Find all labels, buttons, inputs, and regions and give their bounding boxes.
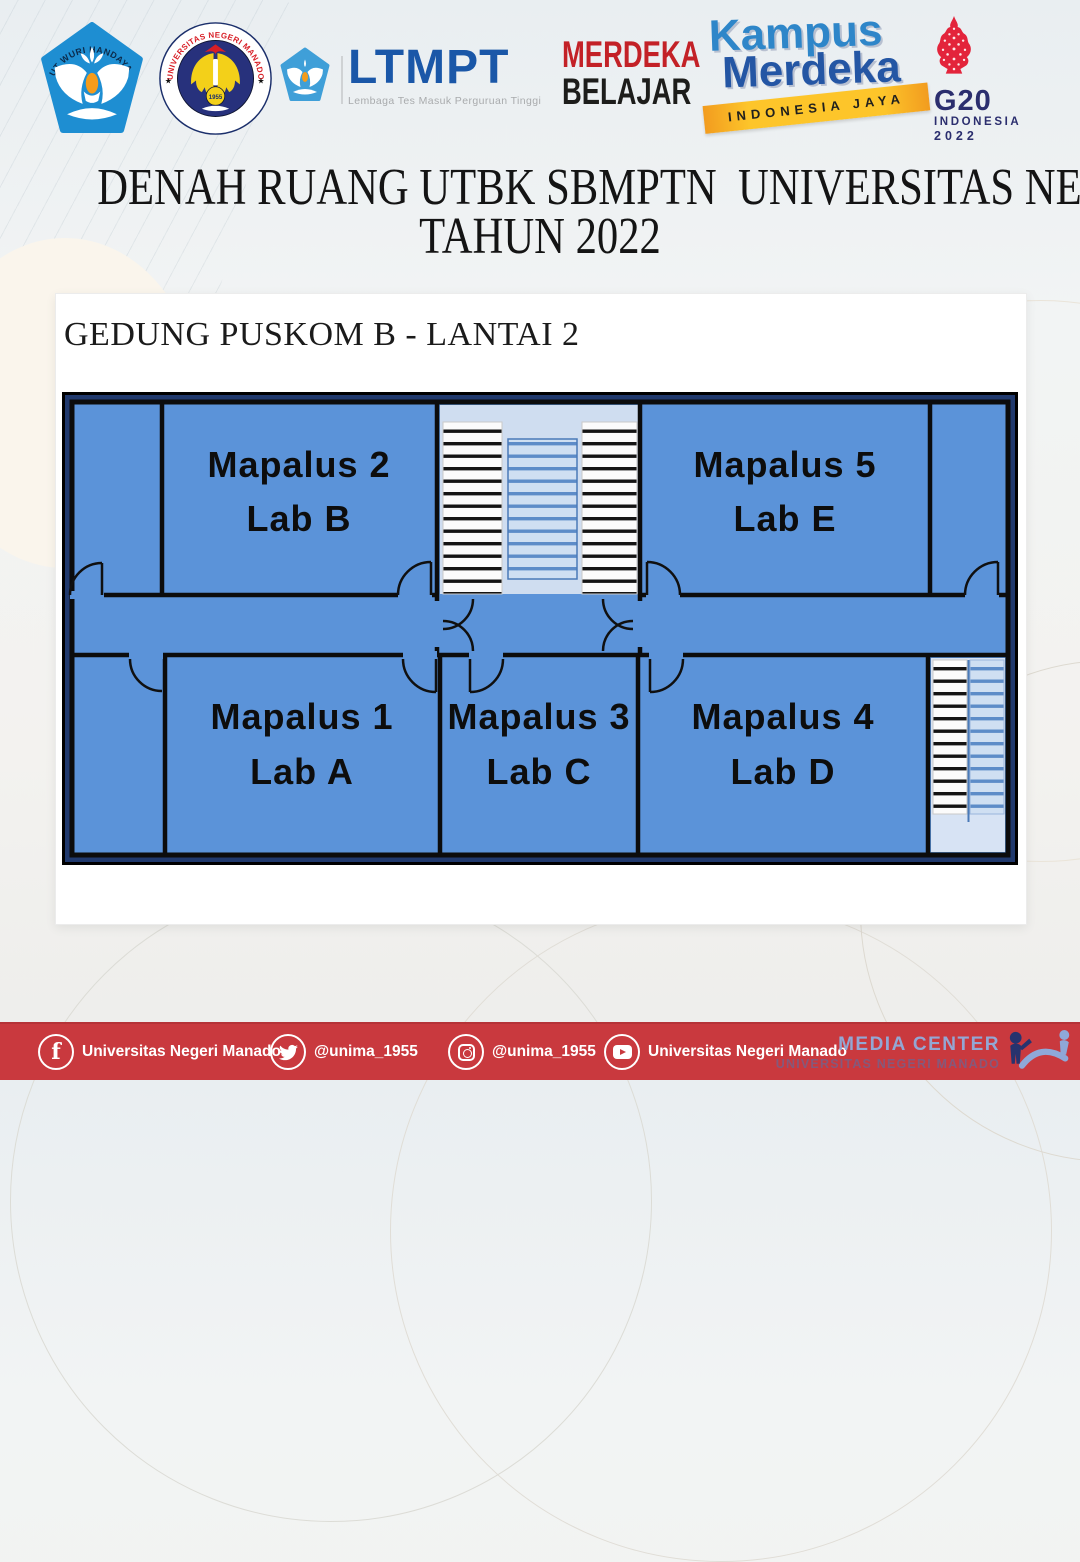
stair-br-flight-left — [933, 660, 967, 814]
svg-text:★: ★ — [165, 76, 172, 85]
room-lab: Lab B — [246, 498, 351, 539]
ltmpt-wordmark: LTMPT — [348, 44, 548, 92]
header-divider — [341, 56, 343, 104]
facebook-icon: f — [38, 1034, 74, 1070]
media-center-logo: MEDIA CENTER UNIVERSITAS NEGERI MANADO — [776, 1026, 1076, 1080]
tutwuri-small-icon — [280, 47, 330, 102]
unima-emblem-icon: UNIVERSITAS NEGERI MANADO UNIMA TONDANO … — [157, 20, 274, 137]
stair-flight-middle — [508, 439, 577, 579]
room-lab: Lab A — [250, 751, 354, 792]
unima-emblem-logo: UNIVERSITAS NEGERI MANADO UNIMA TONDANO … — [157, 20, 274, 142]
media-center-title: MEDIA CENTER — [776, 1035, 1000, 1054]
youtube-icon — [604, 1034, 640, 1070]
floorplan-heading: GEDUNG PUSKOM B - LANTAI 2 — [64, 316, 580, 354]
room-lab: Lab C — [486, 751, 591, 792]
instagram-label: @unima_1955 — [492, 1043, 596, 1061]
room-name: Mapalus 4 — [691, 696, 874, 737]
twitter-label: @unima_1955 — [314, 1043, 418, 1061]
ltmpt-subtitle: Lembaga Tes Masuk Perguruan Tinggi — [348, 95, 548, 107]
g20-logo: G20 INDONESIA 2022 — [934, 16, 1044, 143]
twitter-icon — [270, 1034, 306, 1070]
instagram-icon — [448, 1034, 484, 1070]
g20-gunungan-icon — [934, 16, 974, 80]
g20-country: INDONESIA — [934, 116, 1044, 128]
merdeka-belajar-line2: BELAJAR — [562, 73, 700, 110]
room-name: Mapalus 2 — [207, 444, 390, 485]
room-lab: Lab E — [733, 498, 836, 539]
poster-title-line2: TAHUN 2022 — [97, 212, 983, 261]
tutwuri-small-logo — [280, 47, 330, 107]
unima-year: 1955 — [209, 95, 223, 101]
room-lab: Lab D — [730, 751, 835, 792]
room-name: Mapalus 5 — [693, 444, 876, 485]
g20-wordmark: G20 — [934, 87, 1044, 115]
g20-year: 2022 — [934, 129, 1044, 143]
room-name: Mapalus 1 — [210, 696, 393, 737]
floorplan-drawing: Mapalus 2 Lab B Mapalus 5 Lab E Mapalus … — [62, 392, 1018, 865]
svg-text:★: ★ — [257, 76, 264, 85]
stair-br-flight-right — [970, 660, 1004, 814]
stairwell-top — [440, 405, 638, 594]
media-center-subtitle: UNIVERSITAS NEGERI MANADO — [776, 1058, 1000, 1071]
media-center-figures-icon — [1004, 1026, 1076, 1080]
facebook-label: Universitas Negeri Manado — [82, 1043, 281, 1061]
tutwuri-shield-icon: TUT WURI HANDAYANI — [40, 22, 144, 134]
kampus-merdeka-logo: Kampus Merdeka INDONESIA JAYA — [704, 10, 938, 126]
stairwell-bottom-right — [931, 658, 1005, 852]
poster-title: DENAH RUANG UTBK SBMPTN UNIVERSITAS NEGE… — [0, 163, 1080, 261]
ltmpt-logo: LTMPT Lembaga Tes Masuk Perguruan Tinggi — [348, 44, 548, 107]
floorplan-panel: GEDUNG PUSKOM B - LANTAI 2 — [55, 293, 1027, 925]
tutwuri-handayani-logo: TUT WURI HANDAYANI — [40, 22, 144, 139]
merdeka-belajar-line1: MERDEKA — [562, 36, 700, 73]
footer-bar: f Universitas Negeri Manado @unima_1955 … — [0, 1022, 1080, 1080]
stair-flight-left — [443, 422, 502, 594]
room-name: Mapalus 3 — [447, 696, 630, 737]
poster-title-line1: DENAH RUANG UTBK SBMPTN UNIVERSITAS NEGE… — [97, 163, 983, 212]
stair-flight-right — [582, 422, 637, 594]
